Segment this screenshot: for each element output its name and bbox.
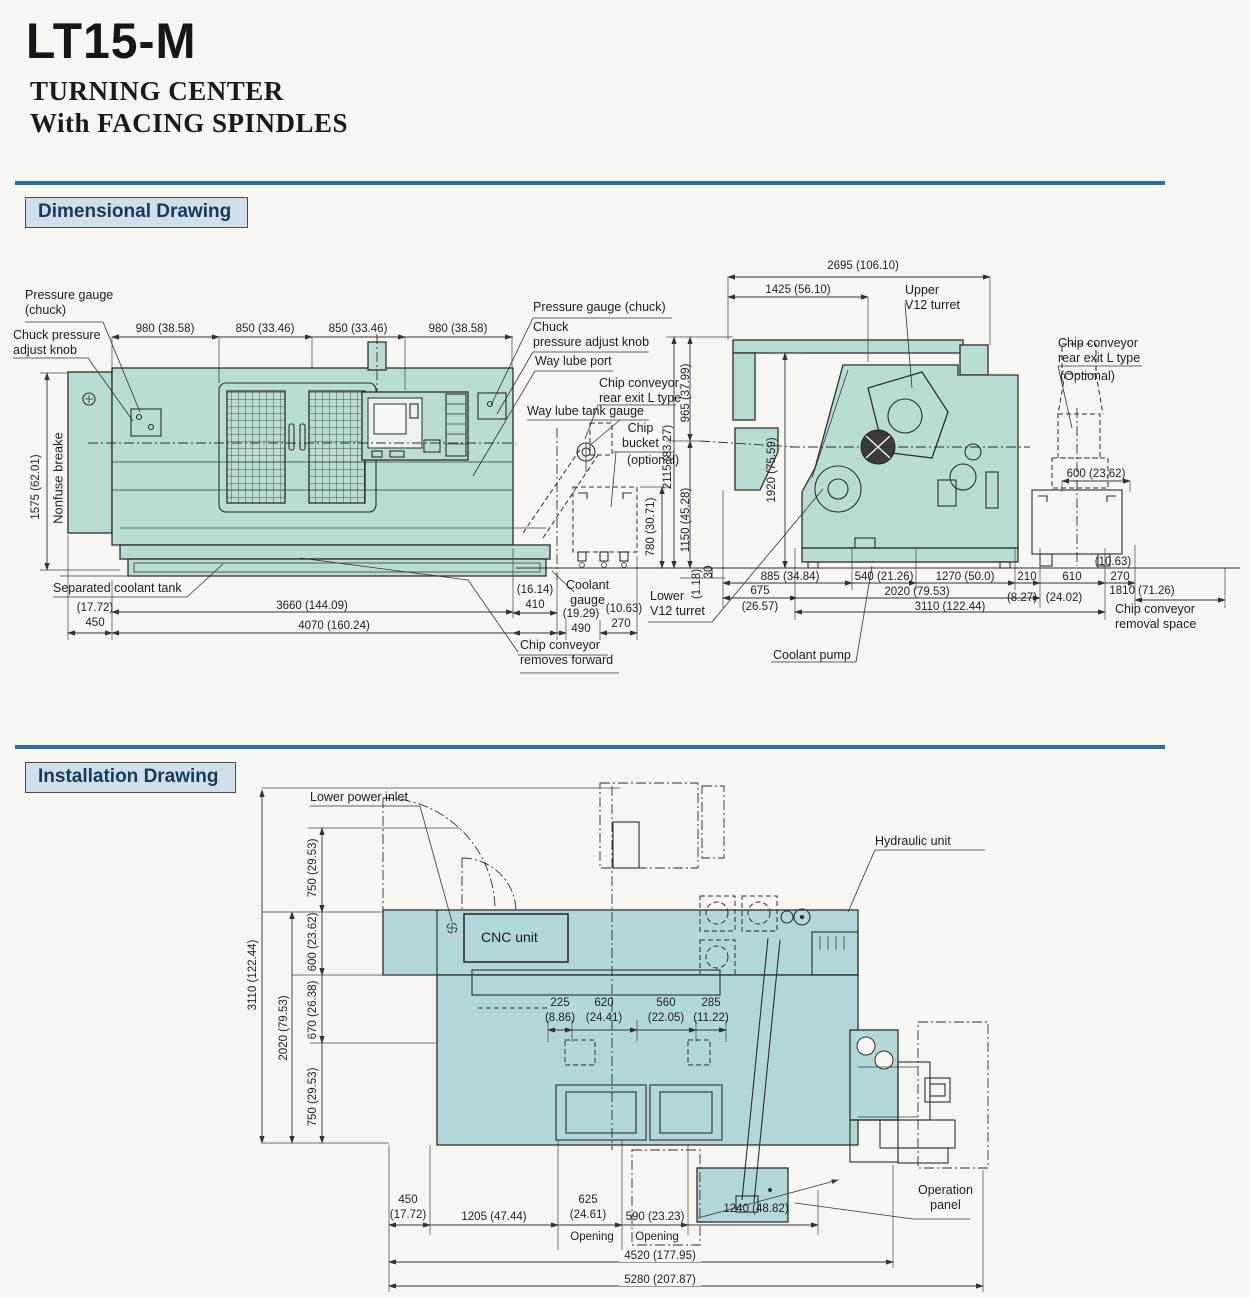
dim-850-1: 850 (33.46) — [236, 323, 295, 335]
dim-490in: (19.29) — [563, 608, 599, 620]
dim-980-1: 980 (38.58) — [136, 323, 195, 335]
nonfuse-cabinet — [68, 372, 112, 533]
label-chip-conveyor-rear-sv: Chip conveyor rear exit L type — [1058, 336, 1140, 366]
machine-base — [120, 545, 550, 559]
section-divider-top — [15, 181, 1165, 185]
dim-3110-sv: 3110 (122.44) — [915, 601, 986, 613]
section-divider-middle — [15, 745, 1165, 749]
dim-750-bottom: 750 (29.53) — [307, 1068, 319, 1127]
dim-450in-iv: (17.72) — [390, 1209, 426, 1221]
dim-670: 670 (26.38) — [307, 981, 319, 1040]
dim-270-fv: 270 — [611, 618, 630, 630]
section-header-dimensional: Dimensional Drawing — [25, 197, 248, 228]
dim-780: 780 (30.71) — [645, 498, 657, 557]
dim-210in: (8.27) — [1007, 592, 1037, 604]
label-opening-right: Opening — [635, 1231, 678, 1243]
cnc-pendant — [362, 392, 468, 460]
dim-1920: 1920 (75.59) — [766, 437, 778, 502]
dim-560: 560 — [656, 997, 675, 1009]
dim-450-fv: 450 — [85, 617, 104, 629]
dim-885: 885 (34.84) — [761, 571, 820, 583]
label-chip-bucket: Chip bucket — [622, 421, 659, 451]
dim-625: 625 — [578, 1194, 597, 1206]
dim-225: 225 — [550, 997, 569, 1009]
dim-590: 590 (23.23) — [626, 1211, 685, 1223]
dim-600-sv: 600 (23.62) — [1067, 468, 1126, 480]
label-hydraulic-unit: Hydraulic unit — [875, 834, 951, 849]
dim-1150: 1150 (45.28) — [680, 488, 692, 552]
dim-610in: (24.02) — [1046, 592, 1082, 604]
label-way-lube-port: Way lube port — [535, 354, 612, 369]
dim-560in: (22.05) — [648, 1012, 684, 1024]
dim-2695: 2695 (106.10) — [827, 260, 899, 272]
dim-675: 675 — [750, 585, 769, 597]
label-chuck-knob-right: Chuck pressure adjust knob — [533, 320, 649, 350]
dim-980-2: 980 (38.58) — [429, 323, 488, 335]
dim-3660: 3660 (144.09) — [276, 600, 348, 612]
plan-main-body — [437, 975, 858, 1145]
dim-1575: 1575 (62.01) — [30, 454, 42, 519]
coolant-tank — [128, 559, 546, 576]
label-pressure-gauge-left: Pressure gauge (chuck) — [25, 288, 113, 318]
label-coolant-gauge: Coolant gauge — [566, 578, 609, 608]
plan-top-strip — [383, 910, 858, 975]
section-header-installation: Installation Drawing — [25, 762, 236, 793]
label-separated-coolant-tank: Separated coolant tank — [53, 581, 182, 596]
dim-450-iv: 450 — [398, 1194, 417, 1206]
dim-3110-iv: 3110 (122.44) — [247, 940, 259, 1011]
dim-4520: 4520 (177.95) — [619, 1250, 701, 1262]
dim-210: 210 — [1017, 571, 1036, 583]
dim-620: 620 — [594, 997, 613, 1009]
dim-2020-sv: 2020 (79.53) — [884, 586, 949, 598]
brochure-page: LT15-M TURNING CENTER With FACING SPINDL… — [0, 0, 1250, 1298]
label-cnc-unit: CNC unit — [481, 929, 538, 946]
label-lower-power-inlet: Lower power inlet — [310, 790, 408, 805]
top-arm — [733, 340, 963, 353]
dim-410: 410 — [525, 599, 544, 611]
dim-1425: 1425 (56.10) — [765, 284, 830, 296]
page-title: LT15-M — [26, 13, 196, 71]
dim-610: 610 — [1062, 571, 1081, 583]
dim-270-sv: 270 — [1110, 571, 1129, 583]
dim-625in: (24.61) — [570, 1209, 606, 1221]
chip-bucket-outline — [573, 487, 637, 552]
label-chuck-knob-left: Chuck pressure adjust knob — [13, 328, 101, 358]
label-coolant-pump: Coolant pump — [773, 648, 851, 663]
dim-410in: (16.14) — [517, 584, 553, 596]
label-way-lube-tank-gauge: Way lube tank gauge — [527, 404, 644, 419]
drawing-geometry — [0, 0, 1250, 1298]
dim-600-iv: 600 (23.62) — [307, 913, 319, 972]
dim-1810: 1810 (71.26) — [1109, 585, 1174, 597]
label-nonfuse-breaker: Nonfuse breake — [51, 432, 66, 524]
dim-1240: 1240 (48.82) — [723, 1203, 788, 1215]
dim-450in-fv: (17.72) — [77, 602, 113, 614]
dim-285: 285 — [701, 997, 720, 1009]
dim-1270: 1270 (50.0) — [936, 571, 995, 583]
dim-965: 965 (37.99) — [680, 364, 692, 423]
vent-grille-left — [227, 391, 285, 503]
dim-30: 30 — [703, 566, 715, 579]
page-subtitle-2: With FACING SPINDLES — [30, 108, 348, 139]
label-removal-space: Chip conveyor removal space — [1115, 602, 1196, 632]
dim-1205: 1205 (47.44) — [461, 1211, 526, 1223]
label-pressure-gauge-right: Pressure gauge (chuck) — [533, 300, 666, 315]
label-upper-turret: Upper V12 turret — [905, 283, 960, 313]
dim-675in: (26.57) — [742, 601, 778, 613]
dim-270in-sv: (10.63) — [1095, 556, 1131, 568]
dim-2115: 2115 (83.27) — [662, 425, 674, 489]
label-operation-panel: Operation panel — [918, 1183, 973, 1213]
dim-850-2: 850 (33.46) — [329, 323, 388, 335]
dim-490: 490 — [571, 623, 590, 635]
dim-540: 540 (21.26) — [855, 571, 914, 583]
dim-620in: (24.41) — [586, 1012, 622, 1024]
dim-5280: 5280 (207.87) — [619, 1274, 701, 1286]
dim-2020-iv: 2020 (79.53) — [278, 995, 290, 1060]
label-chip-conveyor-forward: Chip conveyor removes forward — [520, 638, 613, 668]
dim-285in: (11.22) — [693, 1012, 729, 1024]
label-lower-turret: Lower V12 turret — [650, 589, 705, 619]
vent-grille-right — [309, 391, 365, 503]
dim-270in-fv: (10.63) — [606, 603, 642, 615]
label-opening-left: Opening — [570, 1231, 613, 1243]
dim-225in: (8.86) — [545, 1012, 575, 1024]
page-subtitle-1: TURNING CENTER — [30, 76, 284, 107]
label-chip-conveyor-rear-fv: Chip conveyor rear exit L type — [599, 376, 681, 406]
label-optional: (Optional) — [1060, 369, 1115, 384]
dim-750-top: 750 (29.53) — [307, 839, 319, 898]
dim-4070: 4070 (160.24) — [298, 620, 370, 632]
